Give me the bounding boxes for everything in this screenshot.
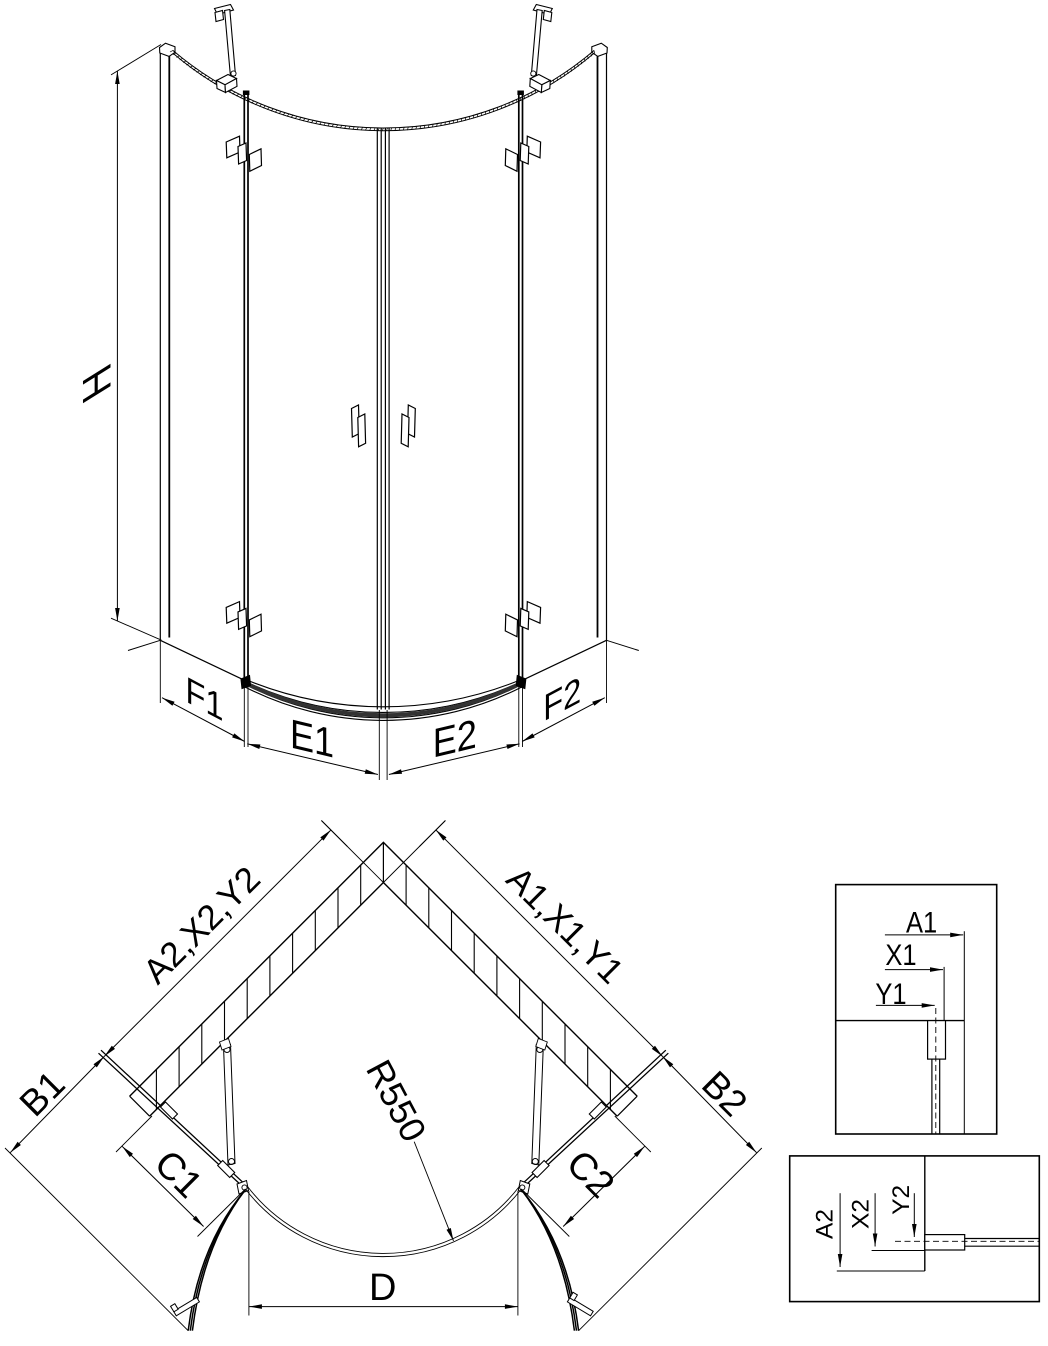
svg-text:A2,X2,Y2: A2,X2,Y2	[136, 859, 268, 991]
svg-text:R550: R550	[358, 1053, 435, 1148]
svg-text:B2: B2	[694, 1063, 755, 1124]
svg-text:C1: C1	[146, 1142, 210, 1206]
svg-text:C2: C2	[558, 1142, 622, 1206]
svg-text:H: H	[75, 355, 120, 412]
svg-text:Y2: Y2	[888, 1185, 915, 1215]
svg-text:X1: X1	[885, 938, 916, 971]
svg-text:B1: B1	[12, 1063, 73, 1124]
svg-text:A1: A1	[906, 906, 937, 939]
svg-text:D: D	[369, 1267, 396, 1309]
svg-text:X2: X2	[848, 1199, 875, 1229]
svg-text:A2: A2	[812, 1209, 839, 1239]
svg-text:E1: E1	[290, 712, 334, 768]
svg-text:A1,X1,Y1: A1,X1,Y1	[499, 859, 631, 991]
svg-text:Y1: Y1	[875, 977, 906, 1010]
svg-text:E2: E2	[433, 712, 477, 768]
